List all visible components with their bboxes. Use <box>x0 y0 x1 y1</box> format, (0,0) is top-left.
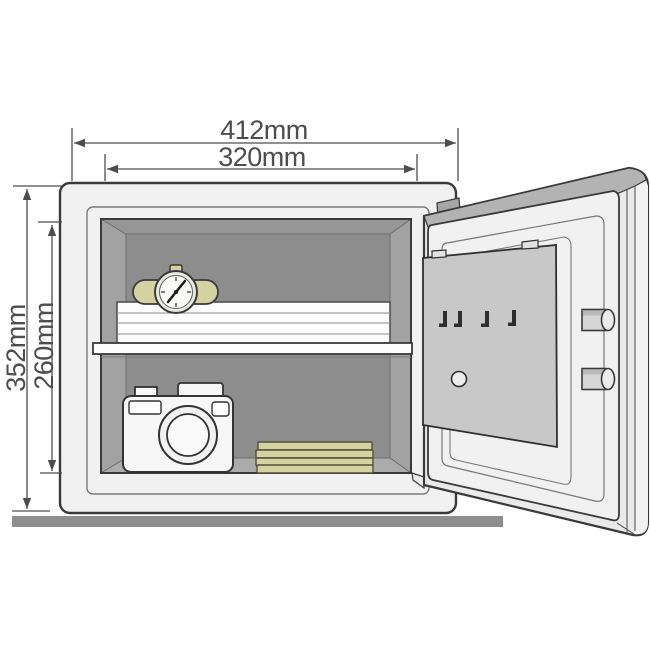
camera-viewfinder <box>129 401 161 414</box>
document-stack <box>117 302 390 344</box>
diagram-canvas: 412mm 320mm 352mm 260mm <box>0 0 650 650</box>
label-inner-width: 320mm <box>218 142 306 172</box>
locking-bolt-top <box>582 310 615 331</box>
gold-bar-stack <box>256 442 373 473</box>
interior-ceiling <box>101 219 411 234</box>
camera-flash <box>212 402 229 416</box>
label-inner-height: 260mm <box>29 302 59 390</box>
label-outer-width: 412mm <box>220 115 308 145</box>
safe-dimension-diagram: 412mm 320mm 352mm 260mm <box>0 0 650 650</box>
panel-hole <box>452 372 467 387</box>
locking-bolt-bottom <box>582 369 615 390</box>
shelf <box>93 343 412 357</box>
camera-lens-inner <box>167 414 209 456</box>
panel-clip-left <box>432 250 446 258</box>
panel-clip-right <box>522 240 538 249</box>
door-slab-band <box>634 180 648 534</box>
dimension-inner-width: 320mm <box>105 142 417 181</box>
safe-body <box>60 183 456 513</box>
label-outer-height: 352mm <box>1 304 31 392</box>
key-hook-panel <box>423 240 557 447</box>
safe-door <box>412 168 648 535</box>
hook-panel-plate <box>423 245 557 447</box>
dimension-inner-height: 260mm <box>29 222 62 473</box>
base-shadow-bar <box>12 516 503 527</box>
camera <box>123 383 233 472</box>
